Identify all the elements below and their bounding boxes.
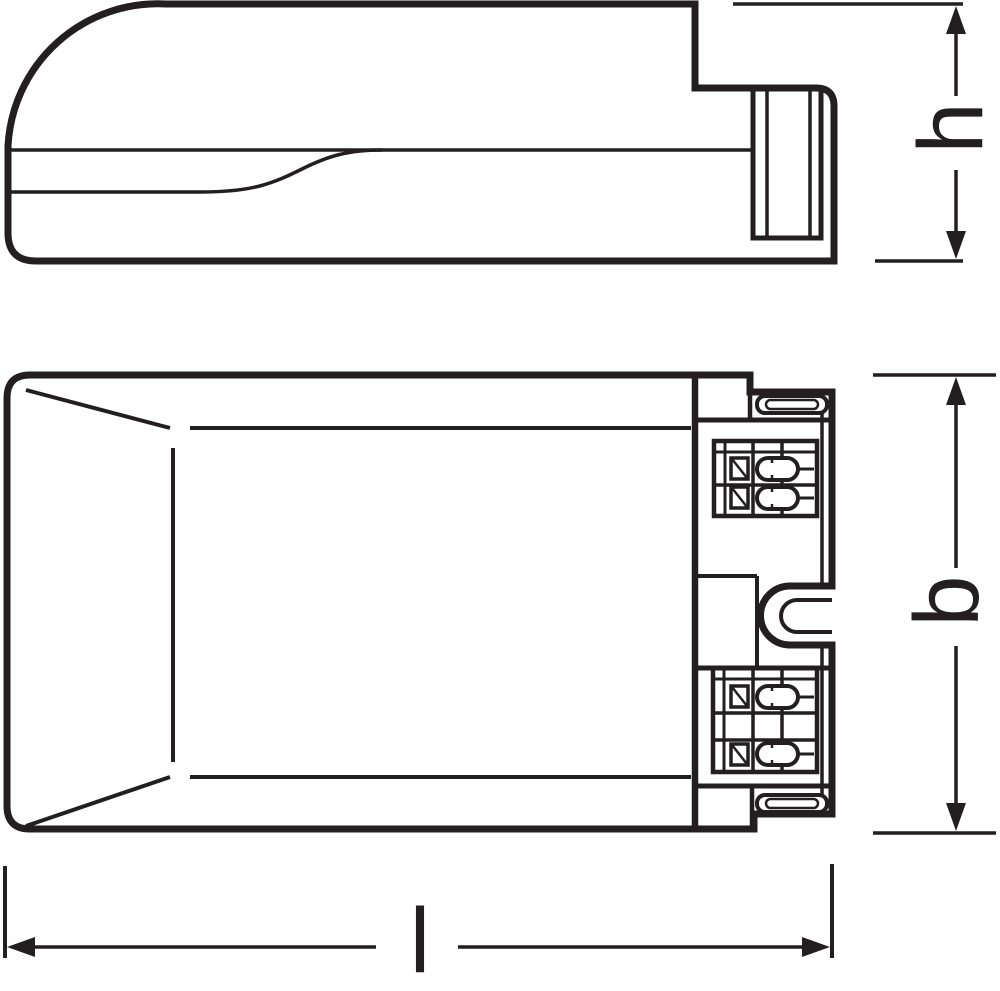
- arrowhead-left-icon: [7, 937, 35, 957]
- technical-drawing-canvas: h b l: [0, 0, 1000, 991]
- dimension-drawing: h b l: [0, 0, 1000, 991]
- mounting-slot-top: [757, 396, 827, 413]
- strain-relief-notch-inner: [781, 600, 832, 632]
- wire-hole-1: [757, 686, 798, 708]
- wire-hole-2: [757, 743, 798, 765]
- dimension-l: l: [5, 864, 832, 991]
- wire-hole-1: [757, 458, 798, 480]
- side-view-outline: [8, 4, 834, 261]
- side-view: [8, 4, 834, 261]
- arrowhead-up-icon: [946, 6, 966, 34]
- mounting-slot-bottom-outer: [757, 795, 827, 812]
- arrowhead-down-icon: [946, 231, 966, 259]
- mounting-slot-top-outer: [757, 396, 827, 413]
- arrowhead-right-icon: [802, 937, 830, 957]
- dimension-b-label: b: [896, 575, 998, 626]
- top-view-outline: [7, 375, 832, 829]
- arrowhead-up-icon: [946, 377, 966, 405]
- dimension-b: b: [873, 375, 998, 833]
- arrowhead-down-icon: [946, 803, 966, 831]
- dimension-h-label: h: [900, 102, 1000, 153]
- wire-hole-2: [757, 487, 798, 509]
- dimension-l-label: l: [410, 890, 430, 991]
- top-view: [7, 375, 832, 829]
- mounting-slot-bottom: [757, 795, 827, 812]
